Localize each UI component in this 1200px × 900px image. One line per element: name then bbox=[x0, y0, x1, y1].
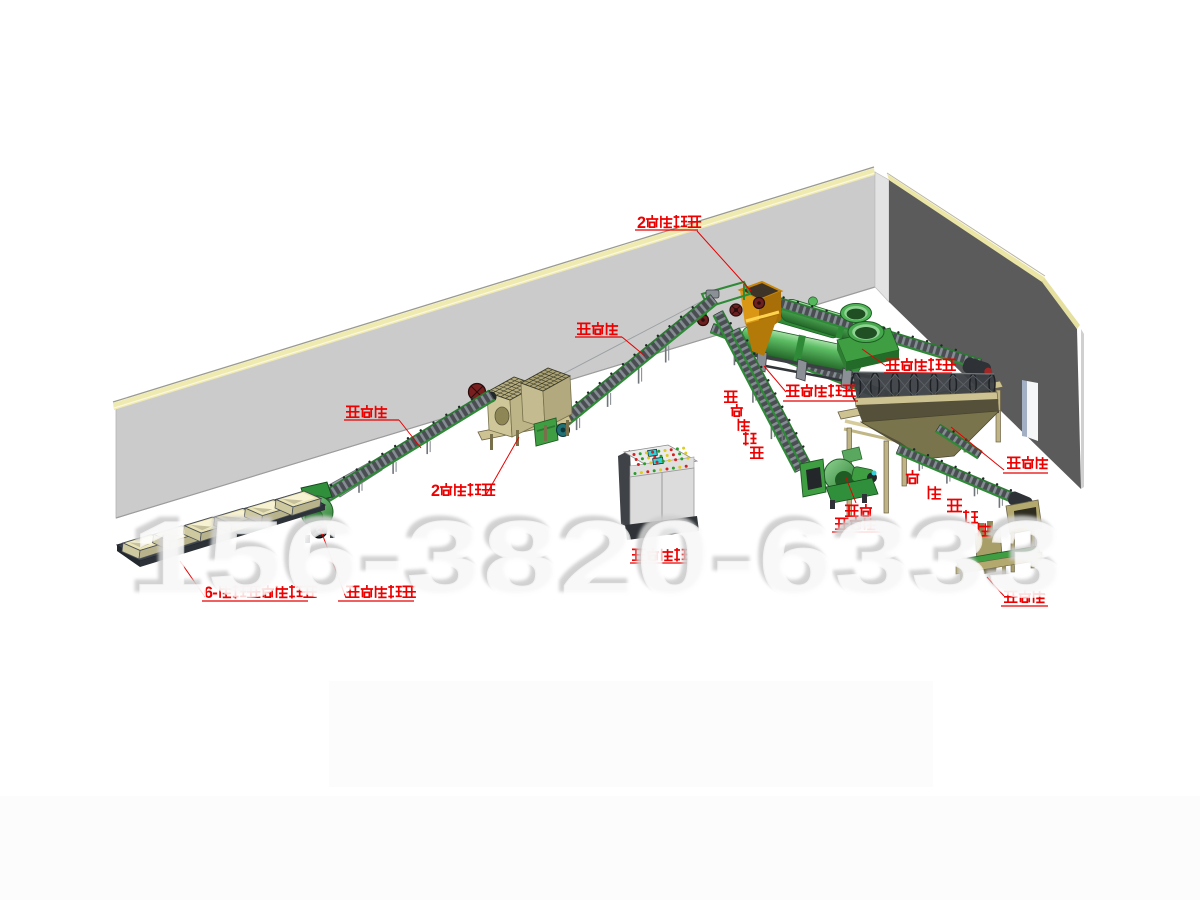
svg-text:2: 2 bbox=[637, 214, 646, 232]
svg-text:156-3820-6333: 156-3820-6333 bbox=[132, 499, 1065, 619]
